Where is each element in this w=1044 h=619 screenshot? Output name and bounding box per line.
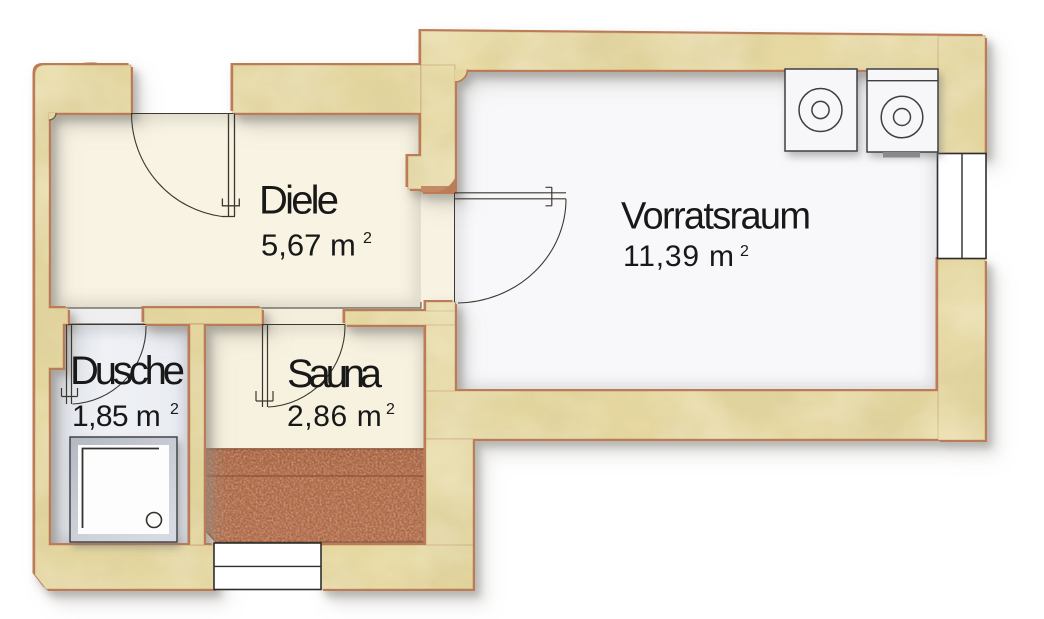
- svg-text:Sauna: Sauna: [287, 352, 383, 396]
- svg-text:11,39 m: 11,39 m: [623, 240, 735, 273]
- svg-text:2: 2: [386, 401, 395, 418]
- svg-text:5,67 m: 5,67 m: [261, 227, 356, 262]
- svg-text:2: 2: [740, 243, 749, 260]
- svg-text:Dusche: Dusche: [70, 349, 185, 393]
- svg-text:1,85 m: 1,85 m: [72, 400, 160, 433]
- svg-text:2: 2: [170, 401, 179, 418]
- svg-text:Vorratsraum: Vorratsraum: [621, 196, 811, 238]
- svg-text:2,86 m: 2,86 m: [287, 400, 382, 433]
- svg-text:2: 2: [363, 230, 372, 247]
- svg-text:Diele: Diele: [259, 179, 339, 223]
